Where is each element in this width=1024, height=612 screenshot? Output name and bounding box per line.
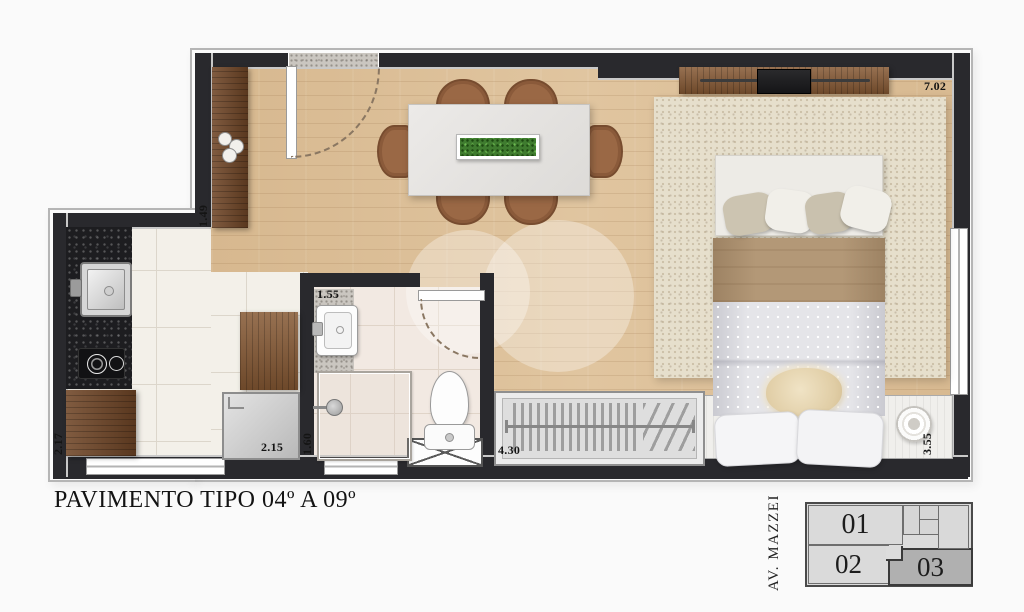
key-plan-core-cell-d	[938, 505, 969, 549]
dimension-living-width: 7.02	[924, 79, 946, 94]
bathroom-sink-drain	[336, 326, 344, 334]
shower-head	[326, 399, 343, 416]
key-plan-core-cell-a	[903, 505, 920, 535]
toilet-tank	[424, 424, 475, 450]
dimension-bathroom-width: 1.55	[317, 287, 339, 302]
kitchen-cabinet-lower	[66, 390, 136, 456]
dimension-service-window: 4.30	[498, 443, 520, 458]
bedroom-side-window	[950, 228, 968, 395]
cooktop-burner-left	[87, 354, 107, 374]
key-plan-core-cell-b	[919, 505, 939, 520]
table-planter	[456, 134, 540, 160]
dimension-entry-cabinet: 1.49	[196, 205, 211, 227]
wall-bathroom-left	[300, 273, 314, 455]
refrigerator-handle	[228, 397, 244, 409]
kitchen-sink-drain	[104, 286, 114, 296]
tv	[757, 69, 811, 94]
cabinet-decor-plate-3	[222, 148, 237, 163]
dimension-bedroom-width: 3.55	[920, 433, 935, 455]
cooktop-burner-right	[109, 356, 124, 371]
dimension-kitchen-depth: 2.17	[51, 433, 66, 455]
toilet-flush-button	[445, 433, 454, 442]
kitchen-sink	[80, 262, 132, 317]
bathroom-faucet	[312, 322, 323, 336]
planter-greenery	[460, 138, 536, 156]
entrance-threshold	[288, 53, 379, 67]
page-title: PAVIMENTO TIPO 04º A 09º	[54, 487, 356, 514]
floor-plan-page: 7.02 1.49 1.55 1.60 2.17 2.15 4.30 3.55 …	[0, 0, 1024, 612]
key-plan-unit-02: 02	[808, 545, 889, 584]
bed-blanket	[713, 238, 885, 302]
bathroom-sink	[316, 305, 358, 356]
cooktop	[78, 348, 125, 379]
dining-chair-right	[585, 125, 623, 178]
drying-rack-panel	[494, 391, 705, 466]
drying-rack-rod	[507, 425, 693, 428]
wall-left-living	[195, 53, 213, 227]
key-plan-unit-03-notch	[886, 546, 903, 561]
drying-rack-cap-left	[505, 420, 508, 433]
key-plan-core-cell-c	[919, 519, 939, 535]
dimension-kitchen-width: 2.15	[261, 440, 283, 455]
toilet-bowl	[430, 371, 469, 430]
fur-throw-pillow	[766, 368, 842, 416]
key-plan-unit-01: 01	[808, 505, 903, 545]
drying-rack-cap-right	[692, 420, 695, 433]
bed-pillow-right	[796, 409, 885, 468]
shower-enclosure	[317, 371, 412, 461]
watermark-circle-right	[482, 220, 634, 372]
kitchen-window	[86, 458, 225, 475]
kitchen-faucet	[70, 279, 82, 297]
kitchen-mid-cabinet	[240, 312, 298, 390]
bed-pillow-left	[714, 411, 802, 467]
key-plan-street-label: AV. MAZZEI	[766, 494, 783, 591]
wall-bathroom-top	[300, 273, 420, 287]
dimension-shower-depth: 1.60	[300, 433, 315, 455]
